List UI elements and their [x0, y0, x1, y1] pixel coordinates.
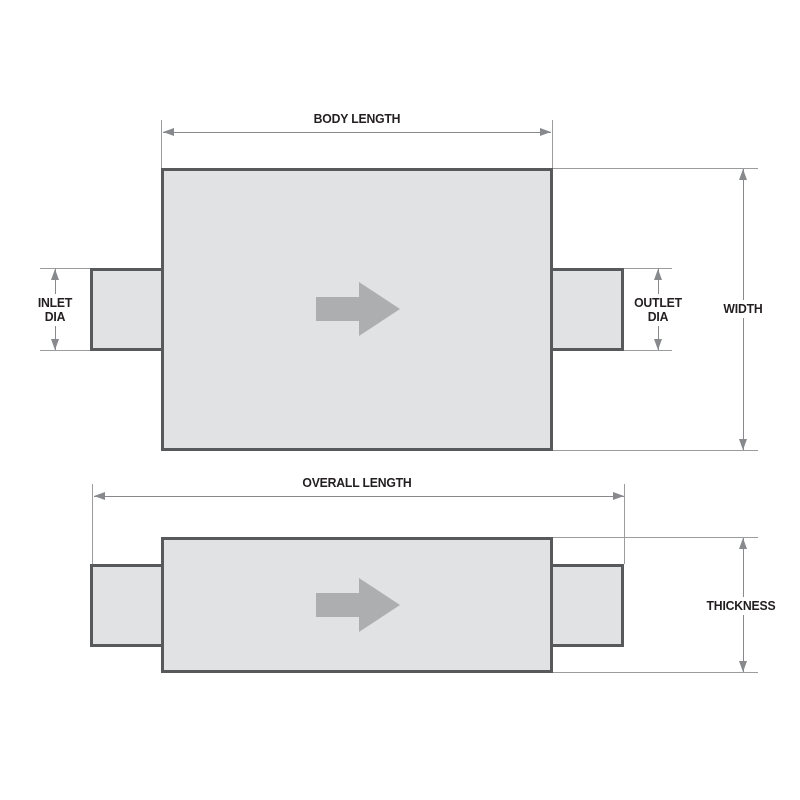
thickness-extension-bottom [553, 672, 758, 673]
thickness-extension-top [553, 537, 758, 538]
body-length-label: BODY LENGTH [263, 112, 451, 126]
outlet-pipe [550, 268, 624, 351]
inlet-dia-label: INLET DIA [22, 294, 88, 326]
body-length-dimension-line [163, 132, 551, 133]
width-extension-bottom [553, 450, 758, 451]
width-label: WIDTH [715, 300, 771, 318]
flow-arrow-tail [316, 593, 360, 617]
flow-arrow-head [359, 578, 400, 632]
flow-arrow-icon [316, 578, 400, 632]
body-length-extension-right [552, 120, 553, 168]
outlet-dia-label: OUTLET DIA [625, 294, 691, 326]
outlet-extension-top [624, 268, 672, 269]
width-extension-top [553, 168, 758, 169]
thickness-label: THICKNESS [702, 597, 779, 615]
inlet-dia-label-line1: INLET [22, 296, 88, 310]
outlet-dia-label-line1: OUTLET [625, 296, 691, 310]
body-length-extension-left [161, 120, 162, 168]
inlet-dia-label-line2: DIA [22, 310, 88, 324]
overall-length-label: OVERALL LENGTH [263, 476, 451, 490]
outlet-pipe [550, 564, 624, 647]
inlet-pipe [90, 268, 164, 351]
muffler-dimension-diagram: BODY LENGTH INLET DIA OUTLET DIA [0, 0, 800, 800]
overall-length-dimension-line [94, 496, 624, 497]
overall-length-extension-left [92, 484, 93, 564]
outlet-extension-bottom [624, 350, 672, 351]
flow-arrow-tail [316, 297, 360, 321]
inlet-extension-top [40, 268, 90, 269]
inlet-pipe [90, 564, 164, 647]
overall-length-extension-right [624, 484, 625, 564]
flow-arrow-head [359, 282, 400, 336]
inlet-extension-bottom [40, 350, 90, 351]
flow-arrow-icon [316, 282, 400, 336]
outlet-dia-label-line2: DIA [625, 310, 691, 324]
